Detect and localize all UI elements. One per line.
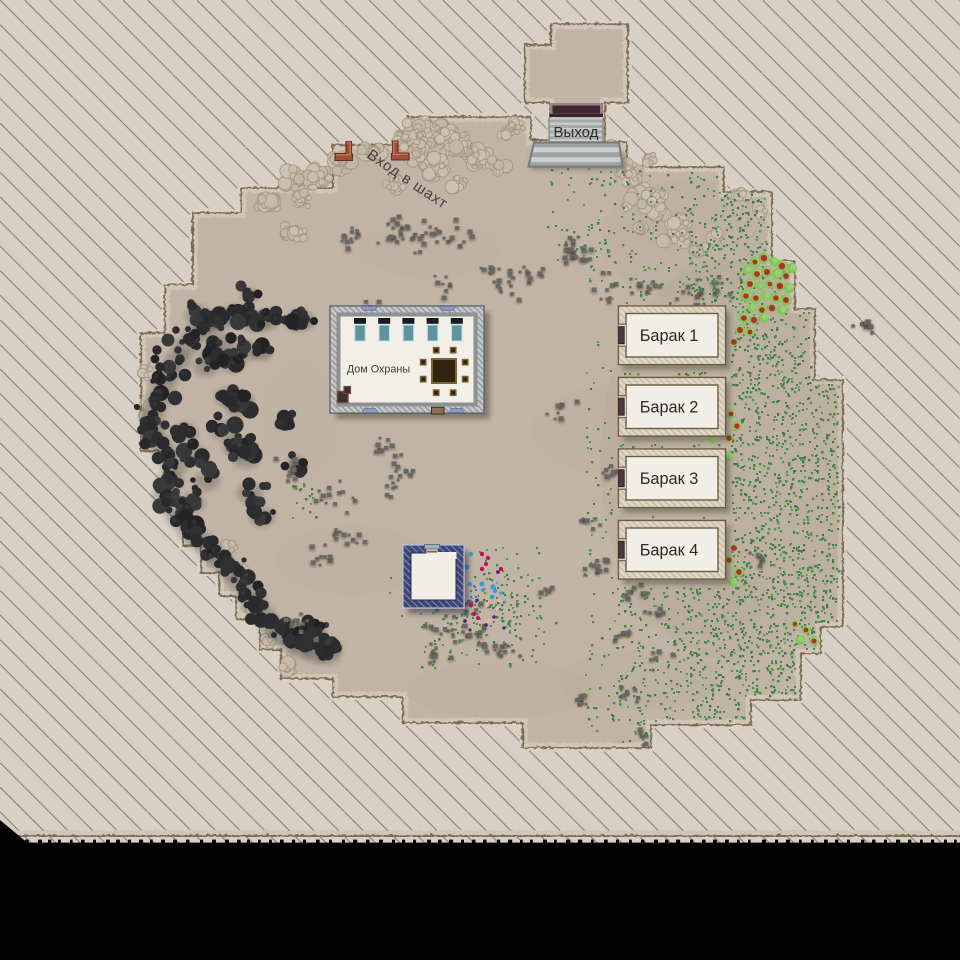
svg-text:Барак 1: Барак 1 (640, 327, 699, 345)
svg-text:Выход: Выход (554, 124, 599, 141)
svg-text:Барак 3: Барак 3 (640, 470, 699, 488)
svg-text:Дом Охраны: Дом Охраны (347, 363, 411, 375)
svg-text:Барак 4: Барак 4 (640, 542, 699, 560)
svg-text:Барак 2: Барак 2 (640, 399, 699, 417)
